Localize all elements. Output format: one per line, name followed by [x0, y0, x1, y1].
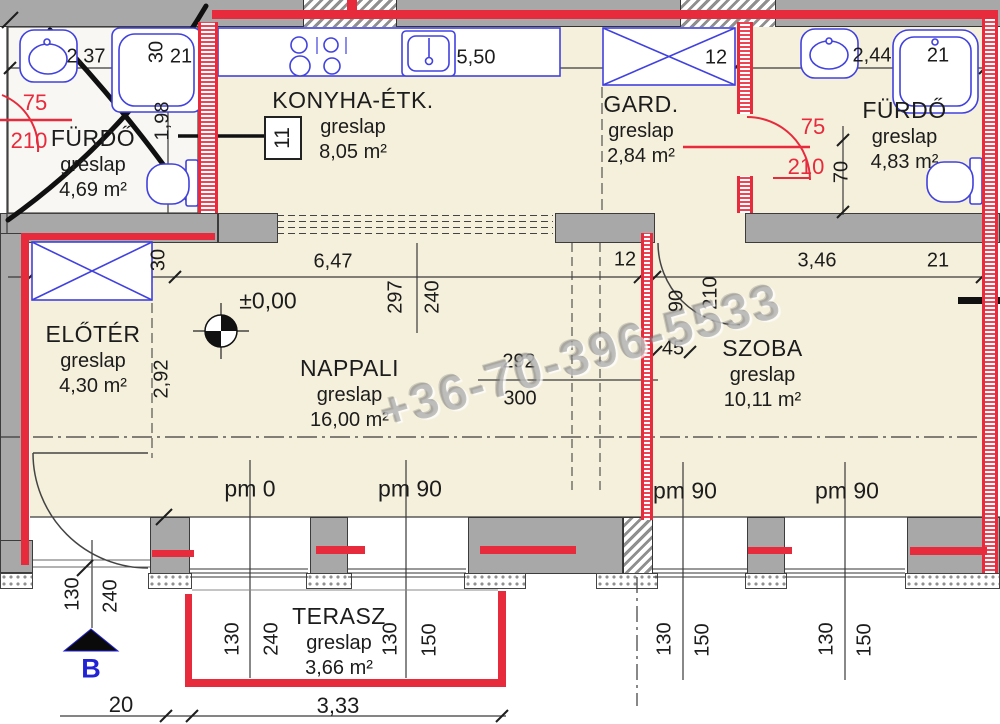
parapet-pm90-1: pm 90: [378, 476, 442, 503]
dim-terasz-130b: 130: [380, 622, 403, 655]
dim-wall-12-mid: 12: [614, 249, 636, 272]
dim-terasz-width: 3,33: [317, 693, 360, 719]
parapet-pm90-3: pm 90: [815, 478, 879, 505]
dim-bath-right-width: 2,44: [853, 45, 892, 68]
parapet-pm90-2: pm 90: [653, 478, 717, 505]
dim-130-left: 130: [62, 577, 85, 610]
dim-right-130b: 130: [816, 622, 839, 655]
dim-right-150b: 150: [854, 623, 877, 656]
dim-nappali-width: 6,47: [314, 251, 353, 274]
dim-eloter-30: 30: [148, 249, 171, 271]
dim-eloter-depth: 2,92: [151, 360, 174, 399]
dim-bath-left-width: 2,37: [67, 46, 106, 69]
dim-240-nappali: 240: [422, 280, 445, 313]
dim-240-left: 240: [100, 579, 123, 612]
dim-21-top-right: 21: [927, 45, 949, 68]
dim-wall-30-top: 30: [146, 41, 169, 63]
dim-70: 70: [831, 161, 854, 183]
door-right-width: 75: [801, 114, 825, 140]
dim-terasz-150: 150: [419, 623, 442, 656]
dim-terasz-130a: 130: [222, 622, 245, 655]
dim-terasz-240: 240: [261, 622, 284, 655]
door-right-height: 210: [788, 154, 825, 180]
dim-right-130a: 130: [654, 622, 677, 655]
floor-plan: FÜRDŐ greslap 4,69 m² KONYHA-ÉTK. gresla…: [0, 0, 1000, 724]
section-label-b: B: [81, 654, 101, 685]
dim-297: 297: [385, 280, 408, 313]
dim-bath-left-198: 1,98: [152, 102, 175, 141]
door-left-height: 210: [11, 128, 48, 154]
level-mark: ±0,00: [239, 288, 296, 315]
door-left-width: 75: [23, 90, 47, 116]
parapet-pm0: pm 0: [224, 476, 275, 503]
dim-gard-wall-12: 12: [705, 47, 727, 70]
dim-21-top-left: 21: [170, 46, 192, 69]
dim-szoba-width: 3,46: [798, 250, 837, 273]
dim-kitchen-width: 5,50: [457, 47, 496, 70]
dim-20: 20: [109, 692, 133, 718]
dim-21-right: 21: [927, 250, 949, 273]
dim-right-150a: 150: [692, 623, 715, 656]
